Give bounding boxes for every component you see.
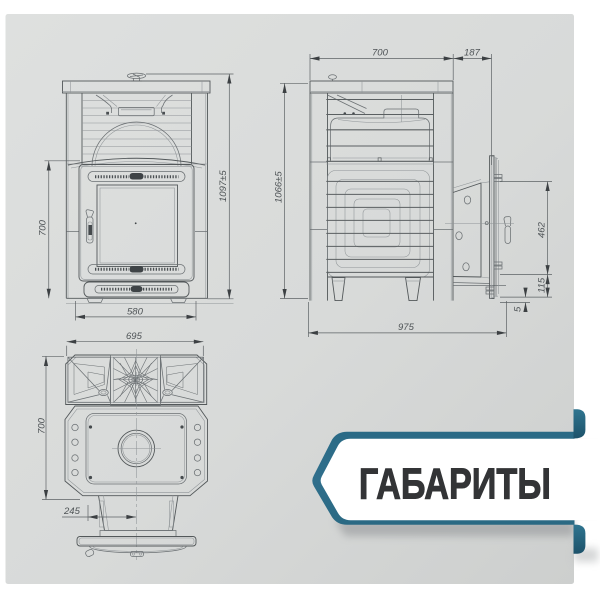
svg-text:ГАБАРИТЫ: ГАБАРИТЫ <box>359 460 551 508</box>
svg-text:462: 462 <box>537 221 548 238</box>
svg-text:695: 695 <box>126 331 143 342</box>
svg-text:580: 580 <box>127 307 144 318</box>
svg-text:245: 245 <box>63 506 81 517</box>
svg-text:700: 700 <box>372 48 389 59</box>
svg-text:975: 975 <box>398 322 415 333</box>
svg-text:1066±5: 1066±5 <box>274 171 285 203</box>
svg-text:700: 700 <box>37 417 48 434</box>
svg-text:187: 187 <box>464 48 481 59</box>
svg-text:115: 115 <box>537 277 548 293</box>
svg-text:1097±5: 1097±5 <box>218 170 229 202</box>
svg-text:700: 700 <box>38 219 49 236</box>
svg-text:5: 5 <box>513 306 524 312</box>
